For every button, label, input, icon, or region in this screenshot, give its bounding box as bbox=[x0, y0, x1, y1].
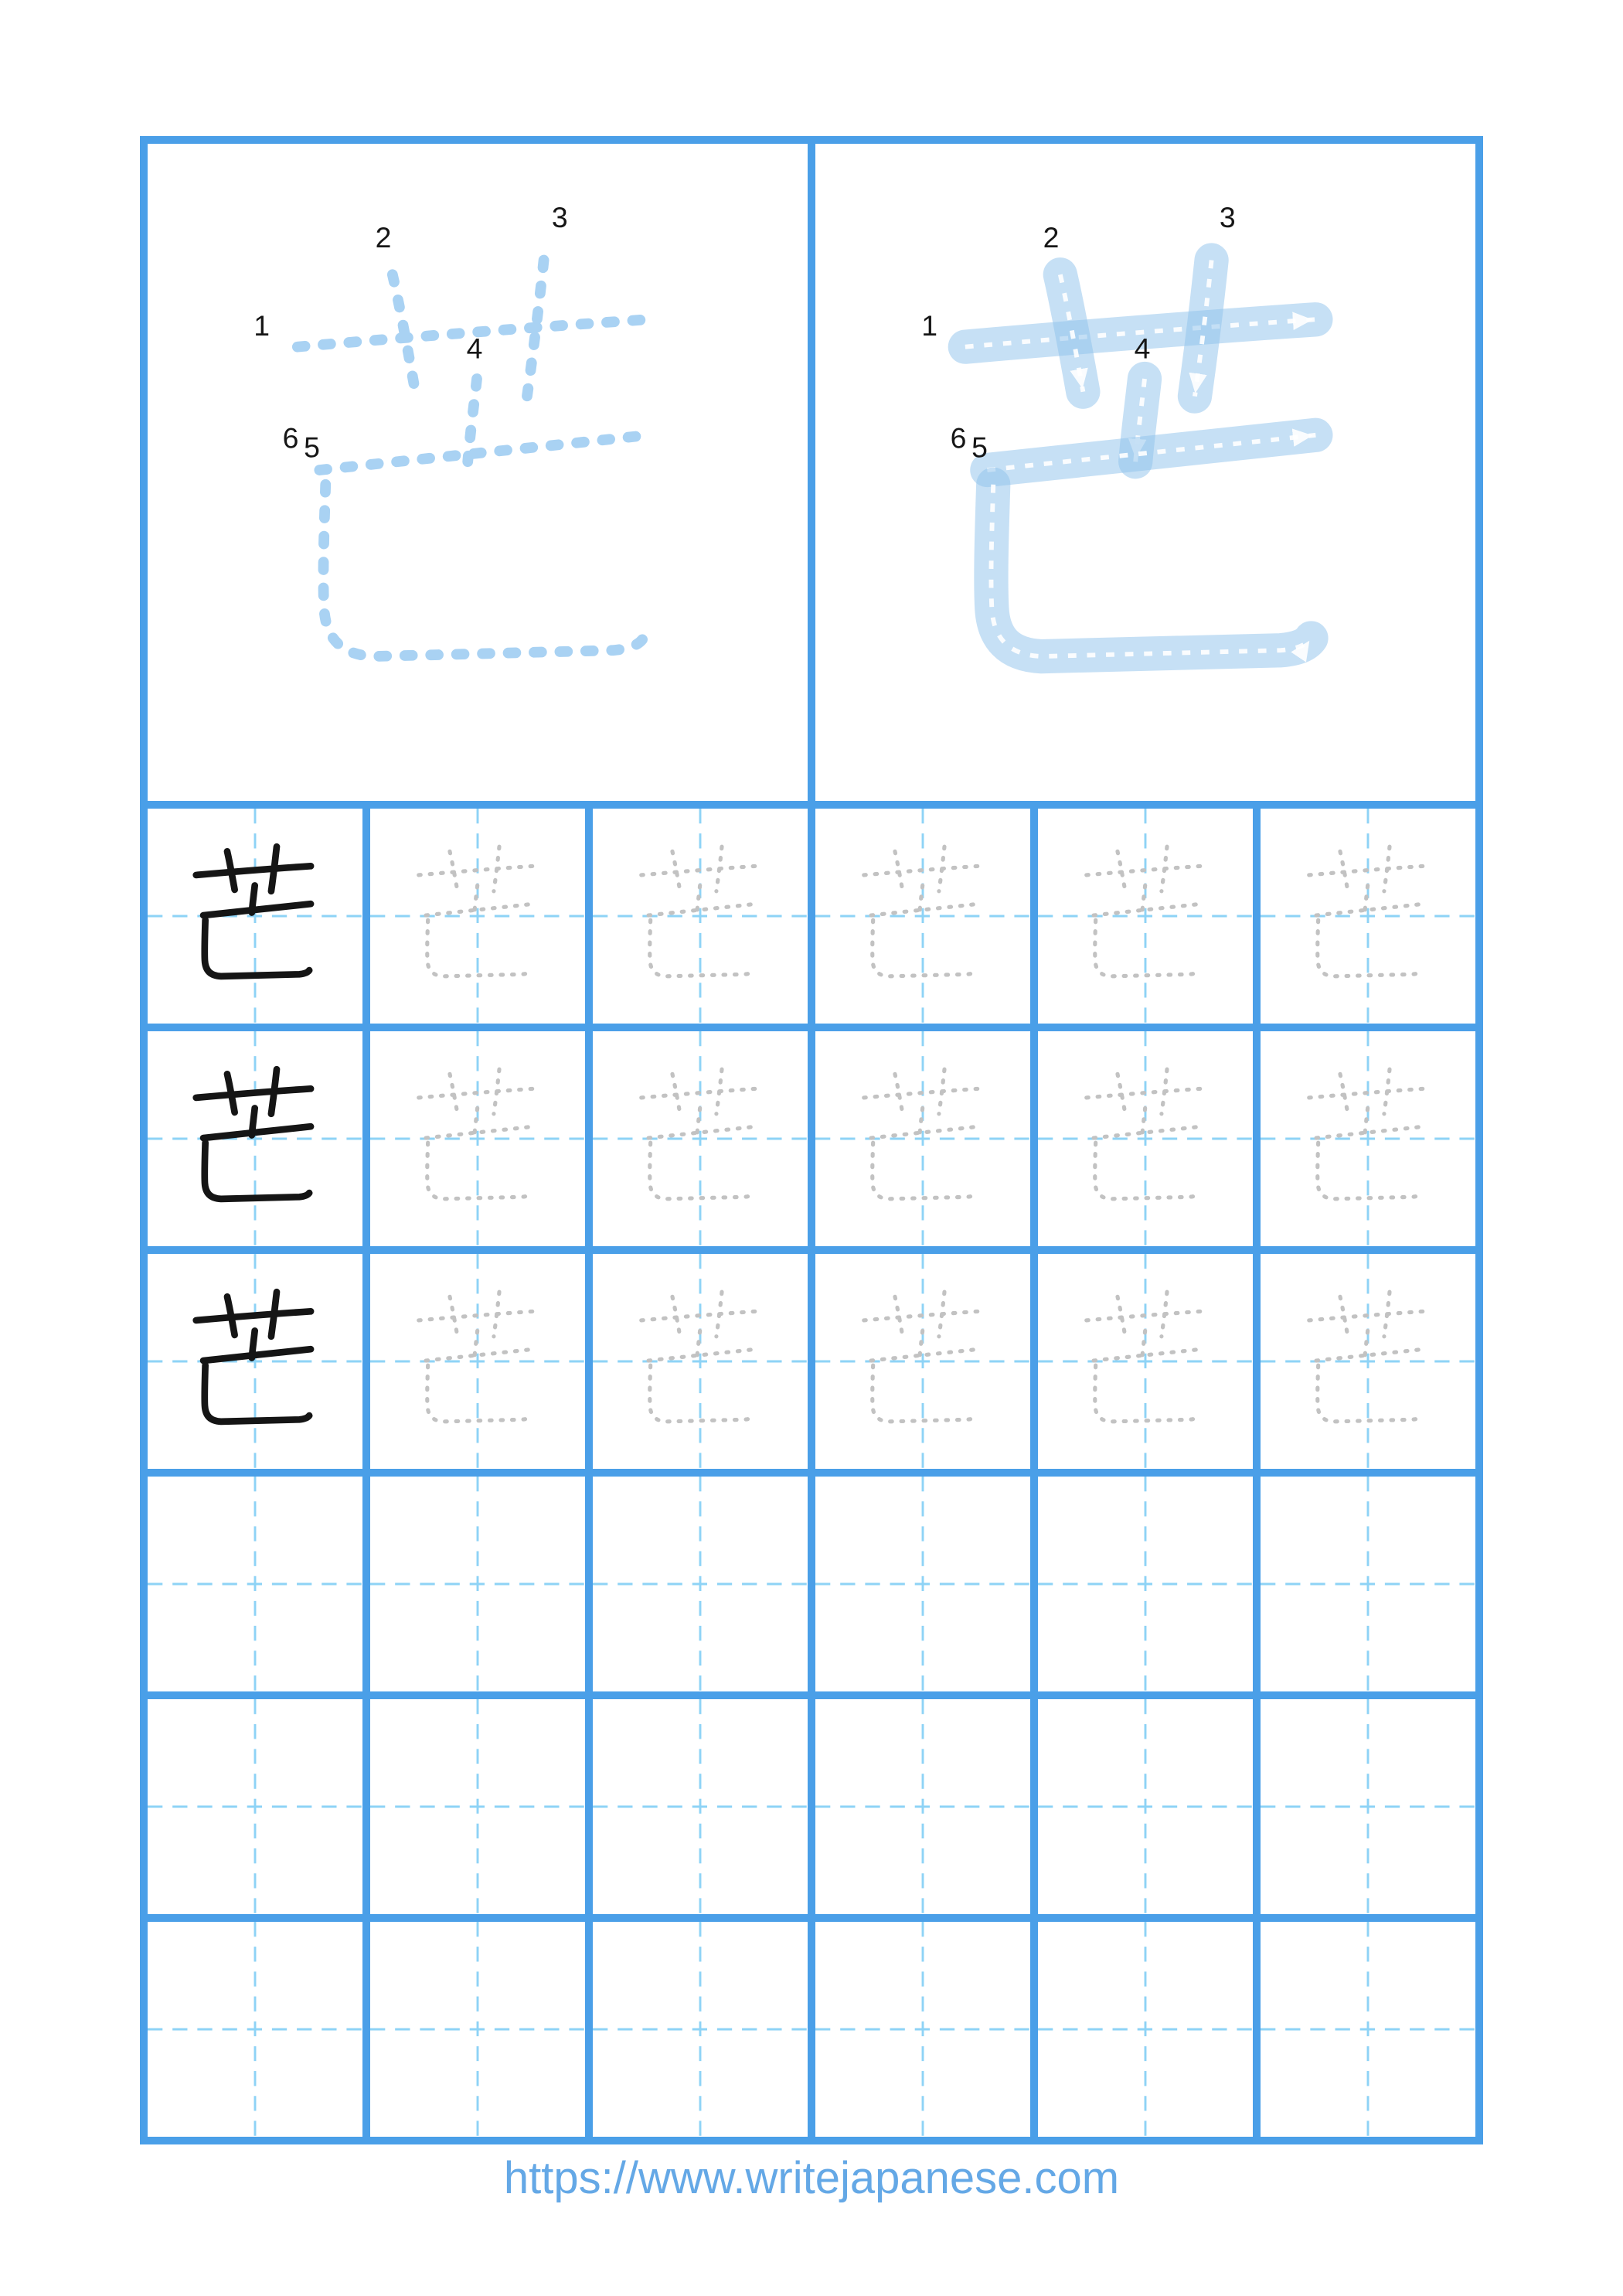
practice-cell-trace bbox=[1038, 1254, 1261, 1477]
kanji-stroke-1 bbox=[641, 1088, 756, 1098]
kanji-glyph-trace bbox=[1087, 1292, 1201, 1422]
kanji-stroke-3 bbox=[716, 1069, 722, 1114]
practice-cell-trace bbox=[593, 1254, 815, 1477]
kanji-glyph-solid bbox=[196, 1069, 311, 1199]
practice-cell-canvas bbox=[593, 1477, 808, 1691]
kanji-stroke-6 bbox=[205, 920, 309, 976]
kanji-glyph-trace bbox=[641, 1069, 756, 1199]
kanji-stroke-5 bbox=[426, 1349, 533, 1361]
practice-cell bbox=[815, 1699, 1038, 1922]
stroke-number-3: 3 bbox=[552, 201, 568, 233]
kanji-stroke-5 bbox=[648, 904, 756, 915]
kanji-stroke-6 bbox=[873, 920, 977, 976]
practice-cell-canvas bbox=[593, 1699, 808, 1914]
practice-cell-canvas bbox=[370, 1922, 585, 2137]
kanji-stroke-5 bbox=[426, 904, 533, 915]
practice-cell-example bbox=[148, 1254, 370, 1477]
kanji-glyph-traced bbox=[965, 261, 1316, 657]
practice-cell-canvas bbox=[370, 1699, 585, 1914]
kanji-stroke-1 bbox=[641, 1311, 756, 1320]
stroke-number-5: 5 bbox=[971, 431, 988, 463]
kanji-stroke-1 bbox=[419, 866, 533, 875]
kanji-stroke-1 bbox=[864, 1311, 978, 1320]
kanji-glyph-trace bbox=[641, 1292, 756, 1422]
kanji-glyph-solid bbox=[196, 1292, 311, 1422]
stroke-order-box-dashed: 123465 bbox=[140, 136, 808, 801]
kanji-stroke-5 bbox=[871, 1349, 978, 1361]
stroke-number-6: 6 bbox=[283, 422, 299, 455]
kanji-stroke-5 bbox=[648, 1126, 756, 1138]
practice-cell-canvas bbox=[148, 1699, 362, 1914]
kanji-stroke-1 bbox=[419, 1088, 533, 1098]
practice-cell bbox=[148, 1922, 370, 2137]
stroke-number-2: 2 bbox=[1043, 221, 1060, 254]
kanji-stroke-3 bbox=[494, 1069, 499, 1114]
kanji-stroke-6 bbox=[427, 1365, 532, 1422]
practice-cell-canvas bbox=[1038, 1031, 1253, 1246]
kanji-stroke-3 bbox=[716, 847, 722, 891]
kanji-stroke-3 bbox=[939, 847, 944, 891]
kanji-glyph-trace bbox=[1087, 1069, 1201, 1199]
practice-cell-canvas bbox=[593, 1922, 808, 2137]
kanji-stroke-6 bbox=[1095, 1365, 1199, 1422]
practice-cell-trace bbox=[1261, 1254, 1475, 1477]
kanji-stroke-1 bbox=[196, 866, 311, 875]
practice-cell-trace bbox=[370, 809, 593, 1031]
stroke-number-5: 5 bbox=[304, 431, 320, 463]
practice-cell-canvas bbox=[1038, 1477, 1253, 1691]
kanji-stroke-3 bbox=[494, 847, 499, 891]
kanji-stroke-1 bbox=[419, 1311, 533, 1320]
practice-cell-canvas bbox=[593, 809, 808, 1024]
practice-cell-canvas bbox=[1261, 1031, 1475, 1246]
kanji-stroke-3 bbox=[1162, 847, 1167, 891]
stroke-number-1: 1 bbox=[921, 309, 937, 342]
kanji-diagram-traced: 123465 bbox=[815, 144, 1475, 801]
practice-cell-canvas bbox=[1261, 1922, 1475, 2137]
stroke-number-4: 4 bbox=[467, 332, 483, 364]
kanji-diagram-dashed: 123465 bbox=[148, 144, 808, 801]
kanji-stroke-5 bbox=[203, 1349, 311, 1361]
kanji-stroke-5 bbox=[319, 435, 648, 470]
kanji-stroke-5 bbox=[871, 1126, 978, 1138]
practice-cell-canvas bbox=[593, 1254, 808, 1469]
practice-cell bbox=[1261, 1922, 1475, 2137]
practice-cell-trace bbox=[815, 809, 1038, 1031]
practice-cell bbox=[1261, 1699, 1475, 1922]
practice-cell-trace bbox=[593, 1031, 815, 1254]
practice-cell-example bbox=[148, 1031, 370, 1254]
kanji-stroke-6 bbox=[1318, 1143, 1422, 1199]
practice-cell-canvas bbox=[148, 1031, 362, 1246]
practice-cell-trace bbox=[370, 1254, 593, 1477]
kanji-stroke-6 bbox=[1095, 1143, 1199, 1199]
practice-cell-trace bbox=[1038, 1031, 1261, 1254]
kanji-stroke-6 bbox=[205, 1143, 309, 1199]
website-url-link[interactable]: https://www.writejapanese.com bbox=[0, 2152, 1623, 2204]
practice-cell-canvas bbox=[370, 1254, 585, 1469]
practice-cell-canvas bbox=[815, 1254, 1030, 1469]
kanji-stroke-6 bbox=[1095, 920, 1199, 976]
kanji-stroke-3 bbox=[1162, 1069, 1167, 1114]
practice-cell-canvas bbox=[370, 809, 585, 1024]
kanji-stroke-3 bbox=[1162, 1292, 1167, 1337]
practice-cell-canvas bbox=[1038, 809, 1253, 1024]
practice-cell-canvas bbox=[815, 809, 1030, 1024]
kanji-glyph-trace bbox=[1309, 1069, 1424, 1199]
kanji-stroke-1 bbox=[1309, 866, 1424, 875]
kanji-stroke-6 bbox=[205, 1365, 309, 1422]
kanji-stroke-1 bbox=[1087, 1088, 1201, 1098]
kanji-stroke-6 bbox=[427, 1143, 532, 1199]
kanji-stroke-3 bbox=[716, 1292, 722, 1337]
practice-cell-canvas bbox=[815, 1699, 1030, 1914]
practice-cell bbox=[593, 1699, 815, 1922]
practice-cell-trace bbox=[1261, 809, 1475, 1031]
practice-cell-trace bbox=[815, 1254, 1038, 1477]
stroke-number-1: 1 bbox=[253, 309, 270, 342]
kanji-glyph-trace bbox=[1087, 847, 1201, 976]
practice-cell-canvas bbox=[1261, 1699, 1475, 1914]
kanji-stroke-1 bbox=[1309, 1311, 1424, 1320]
stroke-number-6: 6 bbox=[951, 422, 967, 455]
practice-cell bbox=[1261, 1477, 1475, 1699]
kanji-stroke-3 bbox=[271, 1292, 277, 1337]
kanji-glyph-solid bbox=[196, 847, 311, 976]
kanji-stroke-5 bbox=[1316, 904, 1424, 915]
kanji-stroke-3 bbox=[1384, 1292, 1390, 1337]
kanji-stroke-2 bbox=[227, 851, 235, 890]
kanji-glyph-trace bbox=[1309, 1292, 1424, 1422]
kanji-stroke-5 bbox=[1316, 1126, 1424, 1138]
kanji-stroke-1 bbox=[864, 1088, 978, 1098]
kanji-stroke-5 bbox=[987, 435, 1315, 470]
practice-cell bbox=[370, 1699, 593, 1922]
practice-cell-canvas bbox=[1038, 1254, 1253, 1469]
practice-cell-canvas bbox=[1261, 1254, 1475, 1469]
practice-cell-trace bbox=[1261, 1031, 1475, 1254]
practice-cell-example bbox=[148, 809, 370, 1031]
stroke-number-2: 2 bbox=[376, 221, 392, 254]
practice-cell-trace bbox=[593, 809, 815, 1031]
kanji-stroke-5 bbox=[1094, 1349, 1201, 1361]
practice-cell-canvas bbox=[1261, 809, 1475, 1024]
practice-cell-canvas bbox=[148, 1922, 362, 2137]
kanji-stroke-6 bbox=[650, 920, 754, 976]
kanji-stroke-3 bbox=[271, 847, 277, 891]
kanji-stroke-3 bbox=[1384, 847, 1390, 891]
kanji-stroke-5 bbox=[871, 904, 978, 915]
practice-cell-canvas bbox=[815, 1477, 1030, 1691]
practice-cell bbox=[148, 1699, 370, 1922]
kanji-stroke-3 bbox=[271, 1069, 277, 1114]
practice-cell-canvas bbox=[148, 1477, 362, 1691]
kanji-stroke-3 bbox=[939, 1292, 944, 1337]
practice-cell bbox=[815, 1477, 1038, 1699]
kanji-stroke-2 bbox=[393, 274, 416, 392]
kanji-glyph-trace bbox=[419, 1292, 533, 1422]
kanji-stroke-1 bbox=[196, 1088, 311, 1098]
stroke-number-3: 3 bbox=[1220, 201, 1236, 233]
kanji-stroke-6 bbox=[1318, 920, 1422, 976]
kanji-stroke-5 bbox=[203, 1126, 311, 1138]
practice-cell bbox=[593, 1922, 815, 2137]
kanji-stroke-6 bbox=[873, 1143, 977, 1199]
kanji-stroke-1 bbox=[1309, 1088, 1424, 1098]
kanji-glyph-trace bbox=[641, 847, 756, 976]
practice-cell-canvas bbox=[1261, 1477, 1475, 1691]
practice-cell-trace bbox=[815, 1031, 1038, 1254]
kanji-stroke-6 bbox=[1318, 1365, 1422, 1422]
kanji-glyph-dashed bbox=[298, 261, 648, 657]
practice-cell-canvas bbox=[1038, 1922, 1253, 2137]
practice-cell-canvas bbox=[1038, 1699, 1253, 1914]
practice-cell-canvas bbox=[370, 1477, 585, 1691]
kanji-stroke-1 bbox=[864, 866, 978, 875]
practice-cell bbox=[593, 1477, 815, 1699]
kanji-stroke-2 bbox=[227, 1074, 235, 1112]
kanji-stroke-5 bbox=[1094, 904, 1201, 915]
practice-cell-canvas bbox=[815, 1031, 1030, 1246]
kanji-stroke-6 bbox=[323, 485, 643, 656]
kanji-stroke-1 bbox=[196, 1311, 311, 1320]
practice-cell-canvas bbox=[370, 1031, 585, 1246]
kanji-practice-sheet: 123465 123465 https://www.writejapanese.… bbox=[0, 0, 1623, 2296]
practice-cell bbox=[815, 1922, 1038, 2137]
kanji-stroke-5 bbox=[648, 1349, 756, 1361]
kanji-stroke-6 bbox=[991, 485, 1311, 656]
kanji-stroke-5 bbox=[203, 904, 311, 915]
practice-cell bbox=[148, 1477, 370, 1699]
kanji-glyph-trace bbox=[864, 1292, 978, 1422]
kanji-glyph-trace bbox=[864, 847, 978, 976]
stroke-order-boxes: 123465 123465 bbox=[140, 136, 1483, 801]
stroke-order-box-traced: 123465 bbox=[808, 136, 1483, 801]
kanji-stroke-3 bbox=[1384, 1069, 1390, 1114]
practice-cell bbox=[1038, 1922, 1261, 2137]
kanji-stroke-3 bbox=[494, 1292, 499, 1337]
kanji-stroke-6 bbox=[873, 1365, 977, 1422]
practice-cell bbox=[370, 1477, 593, 1699]
kanji-glyph-trace bbox=[864, 1069, 978, 1199]
practice-cell bbox=[1038, 1477, 1261, 1699]
kanji-stroke-6 bbox=[427, 920, 532, 976]
kanji-stroke-1 bbox=[1087, 866, 1201, 875]
stroke-number-4: 4 bbox=[1135, 332, 1151, 364]
practice-cell bbox=[370, 1922, 593, 2137]
practice-cell-canvas bbox=[815, 1922, 1030, 2137]
kanji-glyph-trace bbox=[419, 847, 533, 976]
kanji-stroke-5 bbox=[1094, 1126, 1201, 1138]
kanji-stroke-1 bbox=[1087, 1311, 1201, 1320]
practice-cell-trace bbox=[1038, 809, 1261, 1031]
kanji-stroke-3 bbox=[939, 1069, 944, 1114]
practice-cell-canvas bbox=[148, 1254, 362, 1469]
practice-cell-canvas bbox=[148, 809, 362, 1024]
kanji-stroke-1 bbox=[641, 866, 756, 875]
kanji-stroke-6 bbox=[650, 1143, 754, 1199]
kanji-stroke-5 bbox=[1316, 1349, 1424, 1361]
kanji-stroke-5 bbox=[426, 1126, 533, 1138]
stroke-direction-line-6 bbox=[991, 485, 1311, 656]
kanji-glyph-trace bbox=[1309, 847, 1424, 976]
kanji-stroke-6 bbox=[650, 1365, 754, 1422]
practice-cell-canvas bbox=[593, 1031, 808, 1246]
practice-cell-trace bbox=[370, 1031, 593, 1254]
practice-grid bbox=[140, 801, 1483, 2144]
kanji-glyph-trace bbox=[419, 1069, 533, 1199]
practice-cell bbox=[1038, 1699, 1261, 1922]
kanji-stroke-2 bbox=[227, 1296, 235, 1335]
